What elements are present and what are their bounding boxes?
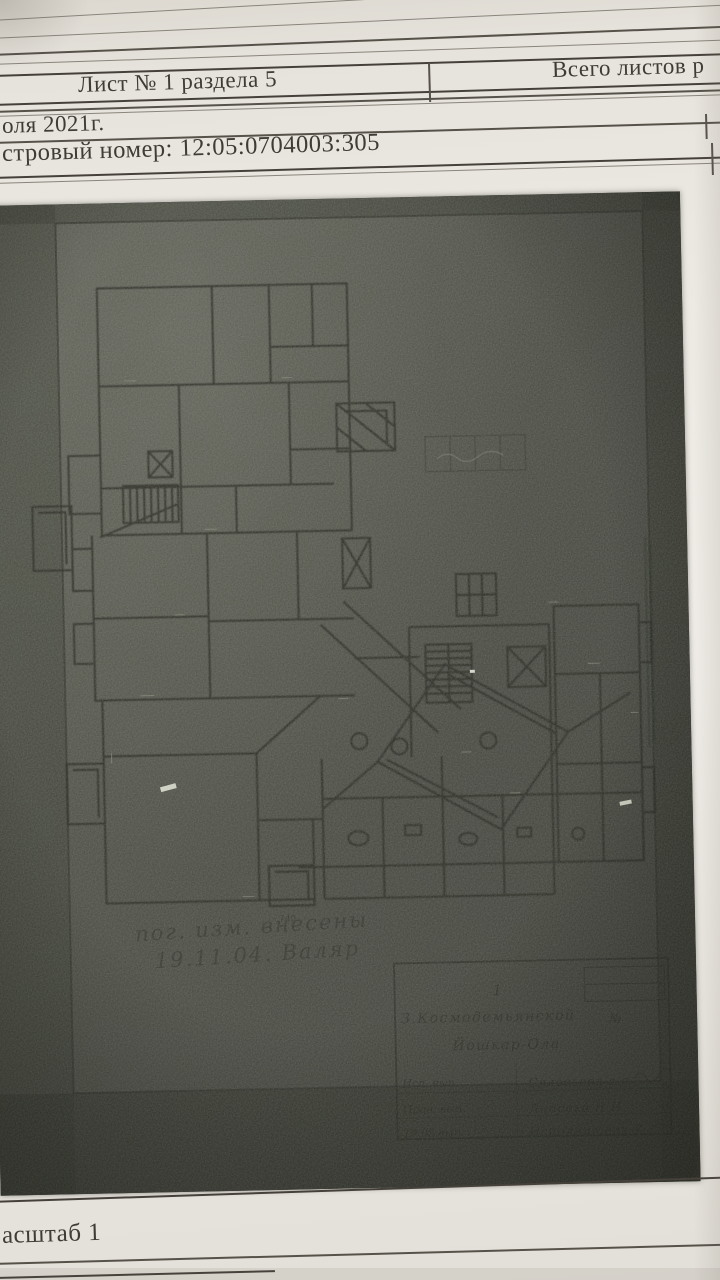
right-edge-shadow <box>694 0 720 1280</box>
scale-label: асштаб 1 <box>2 1219 102 1250</box>
table-cell-divider <box>428 63 431 102</box>
bottom-edge-shadow <box>0 1268 720 1280</box>
floor-plan-photocopy: пог. изм. внесены 19.11.04. Валяр 740 1 … <box>0 191 701 1195</box>
floor-plan-image: пог. изм. внесены 19.11.04. Валяр 740 1 … <box>0 191 701 1195</box>
corner-shadow <box>0 0 90 70</box>
ruled-line <box>0 1243 720 1264</box>
scanned-cadastral-sheet: Лист № 1 раздела 5 Всего листов р оля 20… <box>0 0 720 1280</box>
sheet-number-label: Лист № 1 раздела 5 <box>78 66 278 98</box>
vignette <box>0 191 701 1195</box>
ruled-line <box>0 94 720 117</box>
date-line: оля 2021г. <box>2 110 105 139</box>
total-sheets-label: Всего листов р <box>552 52 705 83</box>
ruled-line <box>0 4 720 39</box>
